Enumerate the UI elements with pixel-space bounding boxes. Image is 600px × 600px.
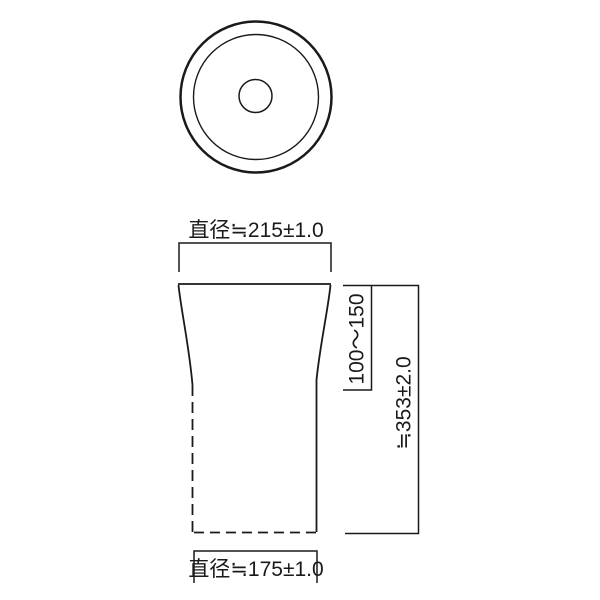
bottom-diameter-label: 直径≒175±1.0 [188,558,323,581]
top-view [181,22,332,173]
top-diameter-label: 直径≒215±1.0 [188,219,323,242]
right-profile-curve [317,285,331,532]
overall-height-label: ≒353±2.0 [393,356,416,449]
top-diameter-dim-line [179,243,331,272]
height-dimensions: 100〜150 ≒353±2.0 [343,286,419,534]
front-view [178,284,331,533]
technical-drawing: 直径≒215±1.0 直径≒175±1.0 100〜150 ≒353±2.0 [0,0,600,600]
inner-rim-circle [194,35,319,160]
flare-height-label: 100〜150 [346,293,369,384]
center-hole-circle [239,80,272,113]
top-diameter-dimension: 直径≒215±1.0 [179,219,331,272]
left-profile-curve [179,285,193,385]
drawing-svg: 直径≒215±1.0 直径≒175±1.0 100〜150 ≒353±2.0 [0,0,600,600]
bottom-diameter-dimension: 直径≒175±1.0 [188,551,323,583]
outer-rim-circle [181,22,332,173]
